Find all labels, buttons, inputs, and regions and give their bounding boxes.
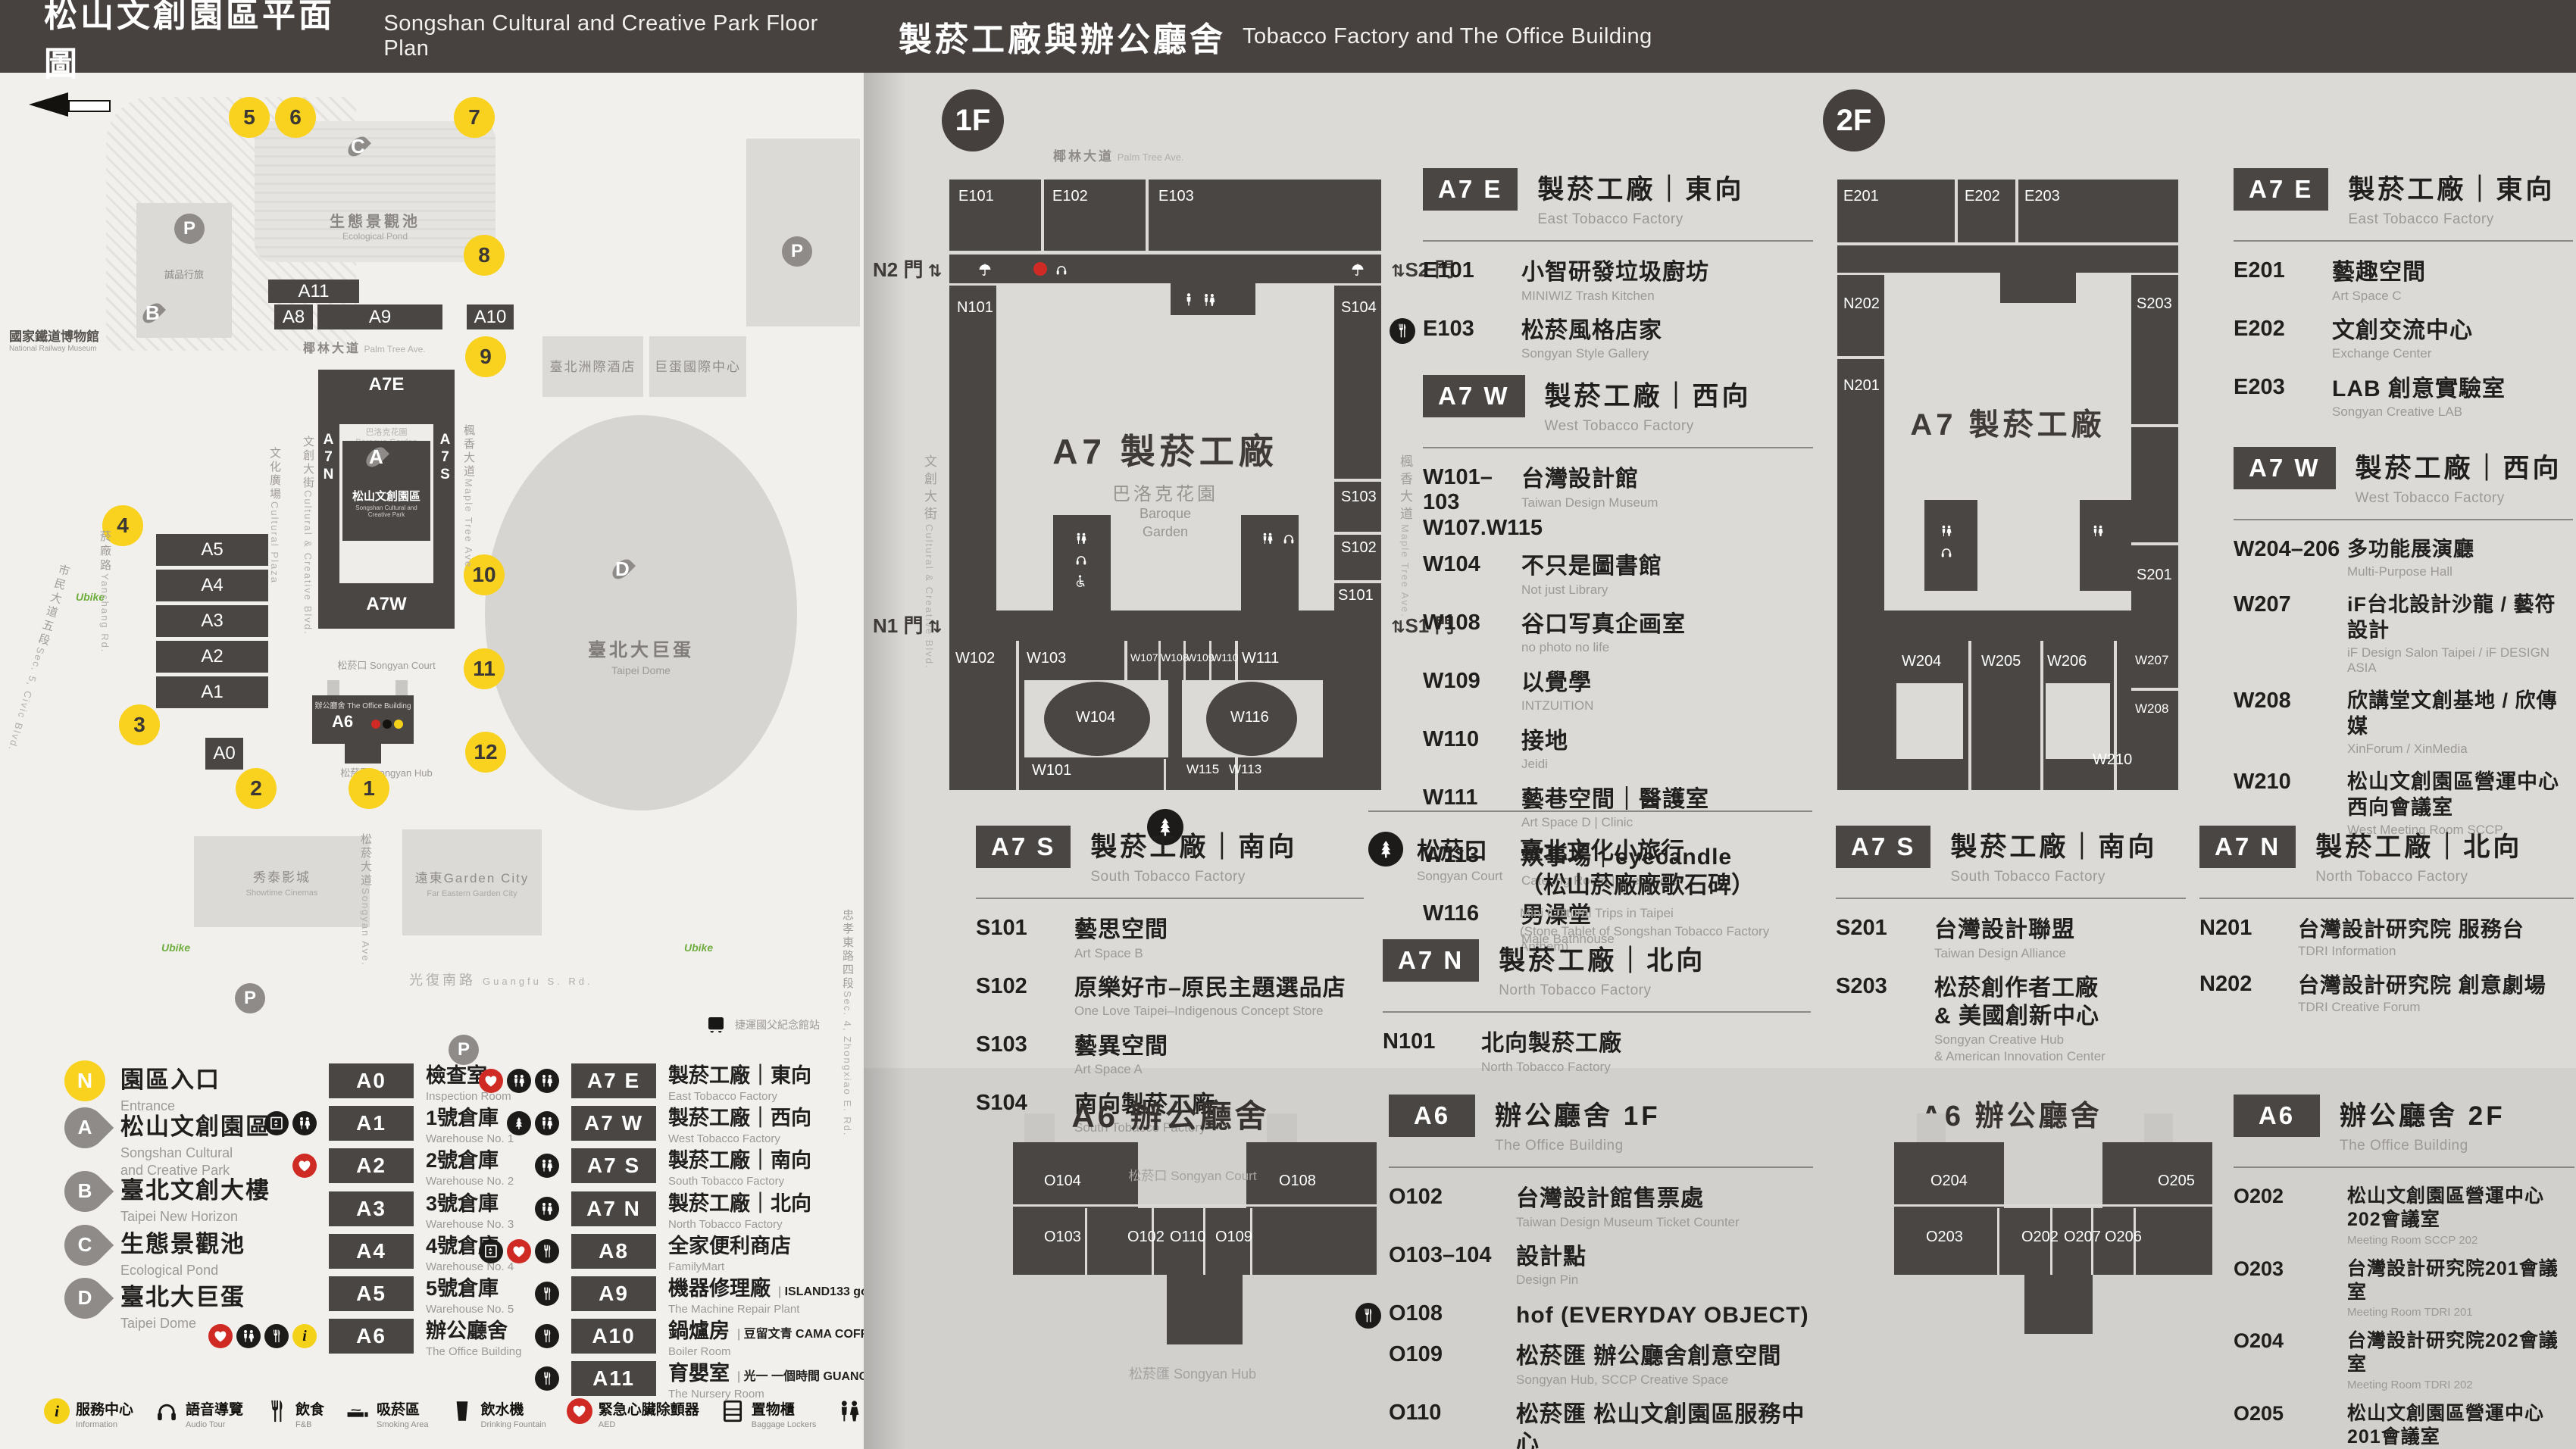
legend-row-icons bbox=[203, 1154, 317, 1178]
left-header: 松山文創園區平面圖 Songshan Cultural and Creative… bbox=[0, 0, 864, 73]
legend-building-row: A7 W 製菸工廠｜西向 West Tobacco Factory bbox=[445, 1101, 811, 1145]
legend-building-row: A11 育嬰室光一 一個時間 GUANG YIN TIME The Nurser… bbox=[445, 1357, 924, 1401]
section-badge: A7 E bbox=[2234, 168, 2328, 211]
directory-entry: O110 松菸匯 松山文創園區服務中心 Songyan Hub, SCCP In… bbox=[1389, 1401, 1813, 1449]
pond-label: 生態景觀池 Ecological Pond bbox=[255, 209, 496, 242]
right-title-zh: 製菸工廠與辦公廳舍 bbox=[899, 12, 1226, 61]
section-2f-a7n: A7 N 製菸工廠｜北向 North Tobacco Factory N201 … bbox=[2199, 826, 2574, 1029]
court-entry-en1: Mini Cultural Trips in Taipei bbox=[1520, 906, 1812, 921]
gate-label: N2 門 bbox=[873, 255, 942, 283]
section-subtitle: West Tobacco Factory bbox=[1545, 418, 1752, 435]
map-a6-bridge bbox=[327, 680, 339, 695]
entrance-number: 3 bbox=[119, 704, 160, 745]
room-label: W204 bbox=[1902, 653, 1941, 670]
office1f-stub bbox=[1167, 1275, 1243, 1344]
directory-entry: W204–206 多功能展演廳 Multi-Purpose Hall bbox=[2234, 537, 2573, 581]
room-label: O205 bbox=[2158, 1173, 2195, 1190]
section-badge: A7 N bbox=[1383, 939, 1479, 982]
section-badge: A7 W bbox=[1423, 375, 1525, 417]
section-subtitle: South Tobacco Factory bbox=[1090, 869, 1297, 885]
room-label: W206 bbox=[2047, 653, 2087, 670]
section-title: 製菸工廠｜南向 bbox=[1090, 826, 1297, 864]
divider bbox=[2234, 240, 2573, 242]
facility-item: i 服務中心 Information bbox=[44, 1398, 133, 1429]
legend-mark: D bbox=[56, 1269, 114, 1327]
songyan-ave-label: 松菸大道Songyan Ave. bbox=[358, 833, 374, 967]
room-label: N101 bbox=[957, 299, 993, 317]
legend-badge: A1 bbox=[329, 1106, 414, 1141]
plan-icon bbox=[1074, 573, 1088, 589]
facility-icon bbox=[567, 1398, 592, 1424]
section-1f-a7e: A7 E 製菸工廠｜東向 East Tobacco Factory E101 小… bbox=[1423, 168, 1813, 375]
legend-mark: C bbox=[56, 1216, 114, 1274]
directory-entry: W208 欣講堂文創基地 / 欣傳媒 XinForum / XinMedia bbox=[2234, 689, 2573, 758]
section-title: 製菸工廠｜東向 bbox=[1537, 168, 1744, 207]
divider bbox=[2234, 519, 2573, 520]
divider bbox=[1389, 1166, 1813, 1168]
compass-icon bbox=[29, 92, 68, 117]
section-badge: A7 N bbox=[2199, 826, 2296, 868]
entrance-number: 8 bbox=[464, 235, 505, 276]
zhongxiao-rd-label: 忠孝東路四段Sec. 4, Zhongxiao E. Rd. bbox=[839, 909, 855, 1137]
legend-badge: A8 bbox=[571, 1234, 656, 1269]
directory-entry: O202 松山文創園區營運中心202會議室 Meeting Room SCCP … bbox=[2234, 1185, 2574, 1249]
plan-icon bbox=[977, 261, 993, 278]
section-badge: A7 S bbox=[976, 826, 1071, 868]
map-block: A2 bbox=[156, 641, 268, 673]
legend-building-row: A9 機器修理廠ISLAND133 gonna' The Machine Rep… bbox=[445, 1272, 893, 1316]
divider bbox=[976, 898, 1364, 899]
section-badge: A7 E bbox=[1423, 168, 1518, 211]
room-label: W210 bbox=[2093, 751, 2132, 769]
floor-2f-badge: 2F bbox=[1823, 89, 1885, 151]
room-label: S102 bbox=[1341, 539, 1377, 557]
legend-badge: A7 S bbox=[571, 1148, 656, 1183]
railway-museum-label: 國家鐵道博物館 National Railway Museum bbox=[9, 326, 138, 353]
map-block: A4 bbox=[156, 570, 268, 601]
court-1f-block: 松菸口 Songyan Court 臺北文化小旅行 （松山菸廠廠歌石碑） Min… bbox=[1368, 810, 1812, 954]
section-office-2f: A6 辦公廳舍 2F The Office Building O202 松山文創… bbox=[2234, 1095, 2574, 1449]
legend-building-row: A8 全家便利商店 FamilyMart bbox=[445, 1229, 791, 1273]
room-label: W108 bbox=[1161, 651, 1189, 664]
section-subtitle: The Office Building bbox=[2340, 1138, 2506, 1154]
legend-point-row: N 園區入口 Entrance bbox=[64, 1060, 220, 1115]
section-badge: A6 bbox=[1389, 1095, 1475, 1137]
map-a6-stub bbox=[345, 744, 381, 764]
facility-item: 置物櫃 Baggage Lockers bbox=[720, 1398, 817, 1429]
section-title: 辦公廳舍 2F bbox=[2340, 1095, 2506, 1133]
divider bbox=[1423, 240, 1813, 242]
room-label: W103 bbox=[1027, 650, 1066, 667]
office2f-stub bbox=[2024, 1275, 2093, 1334]
right-title-en: Tobacco Factory and The Office Building bbox=[1243, 24, 1652, 49]
room-label: O102 bbox=[1127, 1229, 1165, 1246]
plan2f-right-stub bbox=[2080, 500, 2133, 591]
yanchang-rd-label: 菸廠路Yanchang Rd. bbox=[97, 530, 113, 653]
section-subtitle: North Tobacco Factory bbox=[1499, 982, 1705, 999]
room-label: W207 bbox=[2135, 653, 2168, 668]
entrance-number: 1 bbox=[349, 768, 389, 809]
section-office-1f: A6 辦公廳舍 1F The Office Building O102 台灣設計… bbox=[1389, 1095, 1813, 1449]
map-block: A10 bbox=[467, 304, 514, 329]
floor-plan-poster: 松山文創園區平面圖 Songshan Cultural and Creative… bbox=[0, 0, 2576, 1449]
plan2f-left-wing bbox=[1837, 275, 1884, 790]
legend-row-icons bbox=[445, 1324, 559, 1348]
plan-icon bbox=[1261, 530, 1274, 546]
map-a7e-label: A7E bbox=[318, 374, 455, 395]
directory-entry: O108 hof (EVERYDAY OBJECT) bbox=[1389, 1301, 1813, 1332]
legend-mark: B bbox=[56, 1163, 114, 1220]
plan2f-courtyard-right bbox=[2046, 683, 2110, 759]
guangfu-rd-label: 光復南路 Guangfu S. Rd. bbox=[409, 970, 593, 989]
facility-item: 飲水機 Drinking Fountain bbox=[449, 1398, 546, 1429]
section-title: 製菸工廠｜南向 bbox=[1950, 826, 2157, 864]
directory-entry: E201 藝趣空間 Art Space C bbox=[2234, 258, 2573, 305]
plan1f-right-street: 楓香大道Maple Tree Ave. bbox=[1396, 454, 1415, 618]
room-label: S101 bbox=[1338, 587, 1374, 604]
parking-icon: P bbox=[174, 214, 205, 244]
left-title-zh: 松山文創園區平面圖 bbox=[44, 0, 367, 85]
room-label: S104 bbox=[1341, 299, 1377, 317]
court-subtitle: Songyan Court bbox=[1417, 869, 1506, 884]
legend-badge: A3 bbox=[329, 1191, 414, 1226]
directory-entry: W110 接地 Jeidi bbox=[1423, 727, 1813, 774]
legend-row-icons: i bbox=[203, 1324, 317, 1348]
plan1f-palm-ave: 椰林大道 Palm Tree Ave. bbox=[1053, 145, 1184, 164]
plan-icon bbox=[2091, 523, 2105, 539]
legend-building-row: A7 S 製菸工廠｜南向 South Tobacco Factory bbox=[445, 1144, 811, 1188]
directory-entry: W104 不只是圖書館 Not just Library bbox=[1423, 552, 1813, 599]
directory-entry: E202 文創交流中心 Exchange Center bbox=[2234, 317, 2573, 364]
directory-entry: O109 松菸匯 辦公廳舍創意空間 Songyan Hub, SCCP Crea… bbox=[1389, 1342, 1813, 1389]
section-2f-a7e: A7 E 製菸工廠｜東向 East Tobacco Factory E201 藝… bbox=[2234, 168, 2573, 433]
directory-entry: W108 谷口写真企画室 no photo no life bbox=[1423, 611, 1813, 657]
facility-item: 語音導覽 Audio Tour bbox=[154, 1398, 243, 1429]
section-subtitle: East Tobacco Factory bbox=[2348, 211, 2555, 228]
room-label: W102 bbox=[955, 650, 995, 667]
civic-blvd-label: 市民大道五段Sec. 5, Civic Blvd. bbox=[4, 562, 73, 754]
legend-row-icons bbox=[203, 1111, 317, 1135]
room-label: O103 bbox=[1044, 1229, 1081, 1246]
facility-item: 吸菸區 Smoking Area bbox=[345, 1398, 428, 1429]
legend-badge: A10 bbox=[571, 1319, 656, 1354]
divider bbox=[1423, 447, 1813, 448]
map-a7w-label: A7W bbox=[318, 594, 455, 615]
section-title: 製菸工廠｜西向 bbox=[1545, 375, 1752, 414]
room-label: O108 bbox=[1279, 1173, 1316, 1190]
room-label: E102 bbox=[1052, 188, 1088, 205]
room-label: O203 bbox=[1926, 1229, 1963, 1246]
legend-row-icons bbox=[445, 1111, 559, 1135]
parking-icon: P bbox=[235, 983, 265, 1013]
section-2f-a7w: A7 W 製菸工廠｜西向 West Tobacco Factory W204–2… bbox=[2234, 447, 2573, 851]
office1f-hub-label: 松菸匯 Songyan Hub bbox=[1129, 1363, 1256, 1383]
plan2f-top-rooms bbox=[1837, 180, 2178, 243]
room-label: O204 bbox=[1930, 1173, 1968, 1190]
section-title: 製菸工廠｜西向 bbox=[2356, 447, 2562, 486]
legend-badge: A4 bbox=[329, 1234, 414, 1269]
plan1f-corridor bbox=[949, 255, 1381, 283]
room-label: S201 bbox=[2137, 567, 2172, 584]
plan-icon bbox=[1074, 530, 1088, 546]
map-building: 臺北洲際酒店 bbox=[542, 336, 643, 397]
facility-icon bbox=[154, 1398, 180, 1424]
map-block: A8 bbox=[274, 304, 313, 329]
room-label: O104 bbox=[1044, 1173, 1081, 1190]
divider bbox=[1836, 898, 2186, 899]
legend-badge: A11 bbox=[571, 1361, 656, 1396]
room-label: W109 bbox=[1186, 651, 1215, 664]
legend-badge: A5 bbox=[329, 1276, 414, 1311]
plan1f-baroque-en1: Baroque bbox=[1140, 506, 1191, 522]
room-label: O207 bbox=[2064, 1229, 2101, 1246]
facility-icon bbox=[264, 1398, 289, 1424]
section-title: 辦公廳舍 1F bbox=[1495, 1095, 1661, 1133]
room-label: W113 bbox=[1229, 762, 1261, 777]
plan-icon bbox=[1350, 261, 1365, 278]
office2f-courtyard bbox=[2004, 1142, 2102, 1208]
room-label: N201 bbox=[1843, 377, 1880, 395]
mrt-stop-label: 捷運國父紀念館站 bbox=[705, 1013, 820, 1036]
directory-entry: N201 台灣設計研究院 服務台 TDRI Information bbox=[2199, 916, 2574, 960]
room-label: W205 bbox=[1981, 653, 2021, 670]
room-label: W101 bbox=[1032, 762, 1071, 779]
divider bbox=[1368, 810, 1812, 812]
dome-label: 臺北大巨蛋 Taipei Dome bbox=[485, 635, 797, 676]
map-building bbox=[746, 139, 860, 326]
court-entry-zh2: （松山菸廠廠歌石碑） bbox=[1520, 866, 1812, 900]
directory-entry: S103 藝異空間 Art Space A bbox=[976, 1032, 1364, 1079]
map-block: A5 bbox=[156, 534, 268, 566]
plan1f-left-wing bbox=[949, 286, 996, 790]
section-title: 製菸工廠｜北向 bbox=[2315, 826, 2522, 864]
court-title: 松菸口 bbox=[1417, 832, 1506, 866]
legend-building-row: A7 E 製菸工廠｜東向 East Tobacco Factory bbox=[445, 1059, 811, 1103]
legend-row-icons bbox=[445, 1197, 559, 1221]
legend-badge: A7 E bbox=[571, 1063, 656, 1098]
section-subtitle: North Tobacco Factory bbox=[2315, 869, 2522, 885]
room-label: E103 bbox=[1158, 188, 1194, 205]
map-a7s-label: A7S bbox=[436, 432, 453, 484]
legend-badge: A7 W bbox=[571, 1106, 656, 1141]
entrance-number: 2 bbox=[236, 768, 277, 809]
directory-entry: E103 松菸風格店家 Songyan Style Gallery bbox=[1423, 317, 1813, 364]
directory-entry: S201 台灣設計聯盟 Taiwan Design Alliance bbox=[1836, 916, 2186, 963]
plan2f-center-label: A7 製菸工廠 bbox=[1910, 400, 2105, 444]
room-label: W111 bbox=[1242, 650, 1279, 667]
office2f-plan-title: A6 辦公廳舍 bbox=[1921, 1092, 2102, 1134]
floor-1f-badge: 1F bbox=[942, 89, 1004, 151]
map-a6-bridge bbox=[395, 680, 408, 695]
plan-icon bbox=[1055, 261, 1068, 277]
room-label: W110 bbox=[1211, 651, 1239, 664]
taipei-dome-shape bbox=[485, 415, 797, 810]
directory-entry: O103–104 設計點 Design Pin bbox=[1389, 1243, 1813, 1290]
eslite-hotel-label: 誠品行旅 bbox=[155, 267, 213, 281]
cultural-plaza-label: 文化廣場Cultural Plaza bbox=[267, 447, 283, 584]
map-court-label: 松菸口 Songyan Court bbox=[318, 657, 455, 672]
map-block: A9 bbox=[317, 304, 442, 329]
entrance-number: 9 bbox=[465, 336, 506, 377]
map-block: A1 bbox=[156, 676, 268, 708]
legend-mark: N bbox=[64, 1060, 105, 1101]
right-header: 製菸工廠與辦公廳舍 Tobacco Factory and The Office… bbox=[864, 0, 2576, 73]
section-subtitle: East Tobacco Factory bbox=[1537, 211, 1744, 228]
legend-building-row: A7 N 製菸工廠｜北向 North Tobacco Factory bbox=[445, 1187, 811, 1231]
room-label: W107 bbox=[1130, 651, 1158, 664]
directory-entry: S102 原樂好市–原民主題選品店 One Love Taipei–Indige… bbox=[976, 974, 1364, 1021]
facility-icon bbox=[720, 1398, 746, 1424]
room-label: S103 bbox=[1341, 489, 1377, 506]
plan1f-baroque-en2: Garden bbox=[1143, 524, 1188, 540]
facility-icon bbox=[449, 1398, 475, 1424]
entrance-number: 6 bbox=[275, 97, 316, 138]
room-label: N202 bbox=[1843, 295, 1880, 313]
map-building: 遠東Garden City Far Eastern Garden City bbox=[402, 829, 542, 935]
plan-icon bbox=[1282, 530, 1296, 546]
legend-row-icons bbox=[445, 1282, 559, 1306]
plan-icon bbox=[1940, 523, 1953, 539]
plan1f-center-label: A7 製菸工廠 bbox=[1052, 424, 1278, 474]
legend-mark: A bbox=[56, 1099, 114, 1157]
plan1f-baroque-zh: 巴洛克花園 bbox=[1112, 479, 1218, 505]
map-block: A0 bbox=[205, 738, 243, 770]
plan-icon bbox=[1940, 544, 1953, 560]
room-label: E101 bbox=[958, 188, 994, 205]
plan2f-corridor bbox=[1837, 245, 2178, 273]
room-label: W115 bbox=[1186, 762, 1219, 777]
map-building: 巨蛋國際中心 bbox=[649, 336, 746, 397]
directory-entry: E203 LAB 創意實驗室 Songyan Creative LAB bbox=[2234, 375, 2573, 422]
compass-tail bbox=[68, 100, 111, 112]
entrance-number: 7 bbox=[454, 97, 495, 138]
legend-row-icons bbox=[445, 1239, 559, 1263]
directory-entry: O203 台灣設計研究院201會議室 Meeting Room TDRI 201 bbox=[2234, 1257, 2574, 1322]
room-label: O110 bbox=[1170, 1229, 1205, 1246]
plan2f-top-stub bbox=[2000, 273, 2076, 303]
divider bbox=[2199, 898, 2574, 899]
directory-entry: O204 台灣設計研究院202會議室 Meeting Room TDRI 202 bbox=[2234, 1329, 2574, 1394]
entrance-number: 5 bbox=[229, 97, 270, 138]
map-block: A11 bbox=[268, 279, 359, 303]
ubike-label: Ubike bbox=[684, 942, 713, 954]
legend-row-icons bbox=[445, 1366, 559, 1391]
directory-entry: E101 小智研發垃圾廚坊 MINIWIZ Trash Kitchen bbox=[1423, 258, 1813, 305]
facility-item: 飲食 F&B bbox=[264, 1398, 324, 1429]
directory-entry: S203 松菸創作者工廠 & 美國創新中心 Songyan Creative H… bbox=[1836, 974, 2186, 1065]
plan2f-courtyard-left bbox=[1896, 683, 1963, 759]
palm-ave-label: 椰林大道 Palm Tree Ave. bbox=[303, 338, 426, 356]
plan1f-right-wing bbox=[1334, 286, 1381, 790]
directory-entry: O102 台灣設計館售票處 Taiwan Design Museum Ticke… bbox=[1389, 1185, 1813, 1232]
directory-entry: W101–103W107.W115 台灣設計館 Taiwan Design Mu… bbox=[1423, 465, 1813, 541]
section-badge: A7 W bbox=[2234, 447, 2336, 489]
directory-entry: N202 台灣設計研究院 創意劇場 TDRI Creative Forum bbox=[2199, 972, 2574, 1016]
section-subtitle: West Tobacco Factory bbox=[2356, 490, 2562, 507]
cc-blvd-label: 文創大街Cultural & Creative Blvd. bbox=[300, 436, 316, 635]
directory-entry: O205 松山文創園區營運中心201會議室 Meeting Room SCCP … bbox=[2234, 1402, 2574, 1449]
legend-badge: A9 bbox=[571, 1276, 656, 1311]
section-badge: A6 bbox=[2234, 1095, 2320, 1137]
office1f-court-label: 松菸口 Songyan Court bbox=[1128, 1165, 1256, 1184]
divider bbox=[1383, 1011, 1811, 1013]
map-building: 秀泰影城 Showtime Cinemas bbox=[194, 836, 370, 927]
map-a7-building: A7E 巴洛克花園Baroque Garden 松山文創園區 Songshan … bbox=[318, 370, 455, 629]
section-title: 製菸工廠｜北向 bbox=[1499, 939, 1705, 978]
gate-label: N1 門 bbox=[873, 611, 942, 639]
plan1f-bottom-corridor bbox=[949, 611, 1381, 641]
left-title-en: Songshan Cultural and Creative Park Floo… bbox=[383, 11, 864, 61]
room-label: O202 bbox=[2021, 1229, 2059, 1246]
songyan-court-icon bbox=[1368, 832, 1403, 954]
maple-ave-label: 楓香大道Maple Tree Ave. bbox=[461, 424, 477, 573]
directory-entry: W207 iF台北設計沙龍 / 藝符設計 iF Design Salon Tai… bbox=[2234, 592, 2573, 677]
legend-badge: A7 N bbox=[571, 1191, 656, 1226]
facility-icon bbox=[836, 1398, 862, 1424]
plan2f-bottom-corridor bbox=[1837, 611, 2178, 641]
room-label: E203 bbox=[2024, 188, 2060, 205]
facility-item: 緊急心臟除顫器 AED bbox=[567, 1398, 699, 1429]
office1f-plan-title: A6 辦公廳舍 bbox=[1071, 1091, 1269, 1137]
facility-icon bbox=[345, 1398, 370, 1424]
ubike-label: Ubike bbox=[161, 942, 190, 954]
section-subtitle: South Tobacco Factory bbox=[1950, 869, 2157, 885]
parking-icon: P bbox=[782, 236, 812, 267]
directory-entry: S101 藝思空間 Art Space B bbox=[976, 916, 1364, 963]
map-block: A3 bbox=[156, 605, 268, 637]
legend-badge: A6 bbox=[329, 1319, 414, 1354]
court-entry-zh1: 臺北文化小旅行 bbox=[1520, 832, 1812, 866]
directory-entry: N101 北向製菸工廠 North Tobacco Factory bbox=[1383, 1029, 1811, 1076]
section-1f-a7n: A7 N 製菸工廠｜北向 North Tobacco Factory N101 … bbox=[1383, 939, 1811, 1088]
plan-icon bbox=[1202, 291, 1217, 308]
entrance-number: 12 bbox=[465, 732, 506, 773]
legend-badge: A2 bbox=[329, 1148, 414, 1183]
legend-row-icons bbox=[445, 1154, 559, 1178]
room-label: E202 bbox=[1965, 188, 2000, 205]
room-label: O206 bbox=[2105, 1229, 2142, 1246]
legend-row-icons bbox=[445, 1069, 559, 1093]
section-2f-a7s: A7 S 製菸工廠｜南向 South Tobacco Factory S201 … bbox=[1836, 826, 2186, 1076]
entrance-number: 11 bbox=[464, 648, 505, 689]
plan-icon bbox=[1182, 291, 1196, 307]
room-label: W104 bbox=[1076, 709, 1115, 726]
legend-badge: A0 bbox=[329, 1063, 414, 1098]
directory-entry: W109 以覺學 INTZUITION bbox=[1423, 669, 1813, 716]
section-title: 製菸工廠｜東向 bbox=[2348, 168, 2555, 207]
facility-icon: i bbox=[44, 1398, 70, 1424]
section-subtitle: The Office Building bbox=[1495, 1138, 1661, 1154]
room-label: S203 bbox=[2137, 295, 2172, 313]
section-badge: A7 S bbox=[1836, 826, 1930, 868]
room-label: W208 bbox=[2135, 701, 2168, 717]
room-label: E201 bbox=[1843, 188, 1879, 205]
room-label: O109 bbox=[1215, 1229, 1252, 1246]
plan-icon bbox=[1074, 551, 1088, 567]
map-a7n-label: A7N bbox=[320, 432, 336, 484]
divider bbox=[2234, 1166, 2574, 1168]
room-label: W116 bbox=[1230, 709, 1269, 726]
